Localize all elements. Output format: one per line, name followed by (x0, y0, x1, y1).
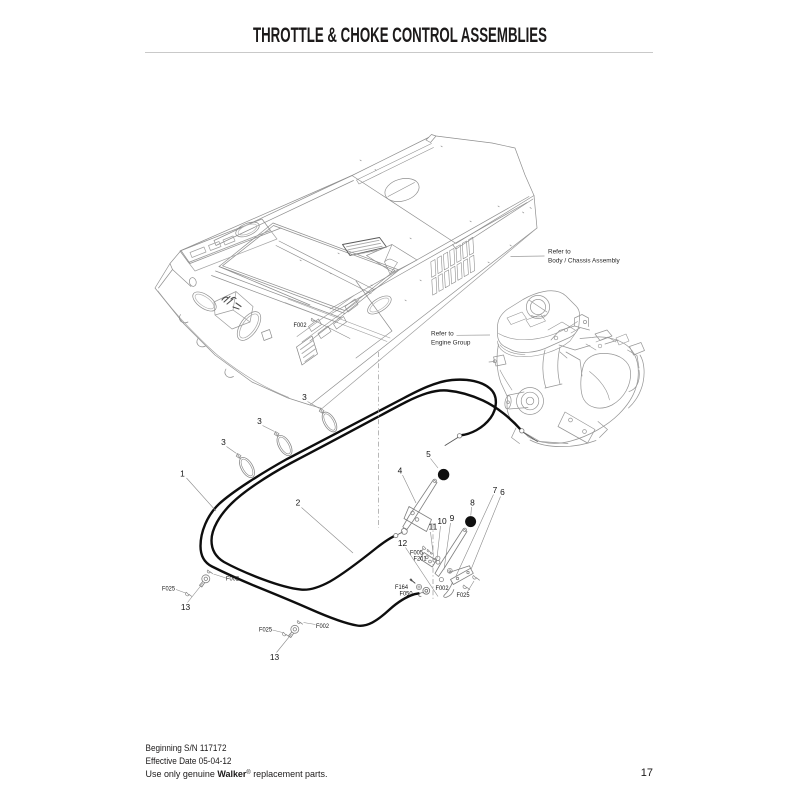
svg-text:3: 3 (221, 437, 226, 447)
svg-text:Effective Date 05-04-12: Effective Date 05-04-12 (146, 756, 232, 766)
svg-text:Beginning S/N 117172: Beginning S/N 117172 (146, 743, 227, 753)
svg-text:F002: F002 (316, 623, 329, 630)
svg-text:3: 3 (302, 392, 307, 402)
svg-text:13: 13 (181, 602, 191, 612)
svg-text:2: 2 (296, 498, 301, 508)
svg-text:Body / Chassis Assembly: Body / Chassis Assembly (548, 258, 621, 265)
svg-text:F025: F025 (457, 592, 470, 599)
svg-text:6: 6 (500, 487, 505, 497)
svg-text:F025: F025 (259, 627, 272, 634)
svg-text:1: 1 (180, 469, 185, 479)
svg-text:8: 8 (470, 498, 475, 508)
svg-text:11: 11 (429, 522, 438, 532)
svg-text:Use only genuine Walker® repla: Use only genuine Walker® replacement par… (146, 769, 328, 779)
svg-text:THROTTLE & CHOKE CONTROL ASSEM: THROTTLE & CHOKE CONTROL ASSEMBLIES (253, 23, 547, 47)
svg-text:Refer to: Refer to (431, 331, 454, 338)
svg-text:7: 7 (493, 485, 498, 495)
svg-text:5: 5 (426, 449, 431, 459)
svg-text:Refer to: Refer to (548, 249, 571, 256)
svg-text:9: 9 (450, 513, 455, 523)
svg-text:12: 12 (398, 538, 408, 548)
svg-text:10: 10 (437, 516, 447, 526)
svg-text:F025: F025 (162, 586, 175, 593)
svg-text:F050: F050 (400, 591, 413, 598)
svg-text:F002: F002 (436, 585, 449, 592)
svg-text:F201: F201 (414, 556, 427, 563)
svg-text:F002: F002 (226, 576, 239, 583)
svg-text:13: 13 (270, 652, 280, 662)
svg-text:4: 4 (398, 466, 403, 476)
svg-text:F002: F002 (294, 322, 307, 329)
svg-text:17: 17 (641, 767, 653, 779)
svg-text:3: 3 (257, 416, 262, 426)
svg-text:Engine Group: Engine Group (431, 340, 471, 347)
